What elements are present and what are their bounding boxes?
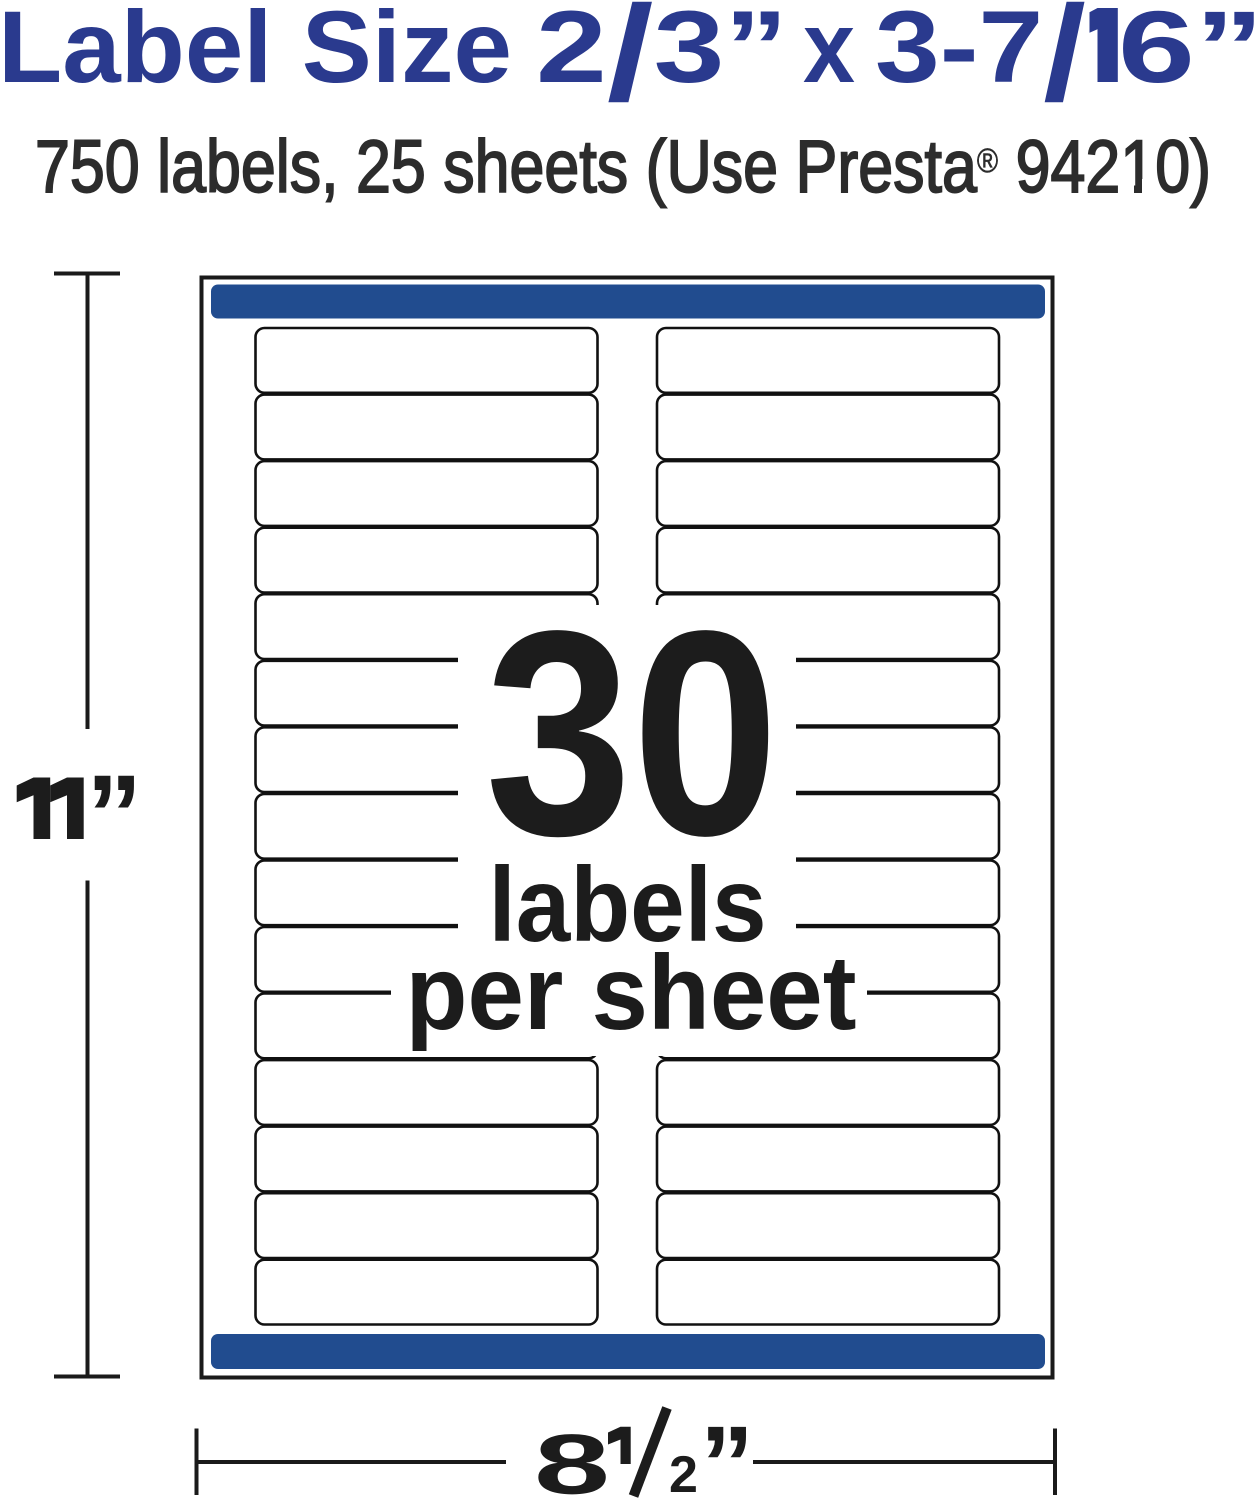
svg-text:8: 8	[534, 1418, 610, 1500]
svg-text:2: 2	[669, 1446, 698, 1500]
svg-text:per sheet: per sheet	[406, 934, 857, 1052]
svg-text:Label Size: Label Size	[0, 0, 512, 104]
svg-text:750 labels, 25 sheets (Use Pre: 750 labels, 25 sheets (Use Presta® 94210…	[35, 125, 1211, 208]
svg-text:x: x	[803, 0, 855, 104]
svg-text:”: ”	[700, 1403, 754, 1500]
svg-text:6”: 6”	[1118, 0, 1254, 104]
svg-text:”: ”	[86, 752, 142, 877]
